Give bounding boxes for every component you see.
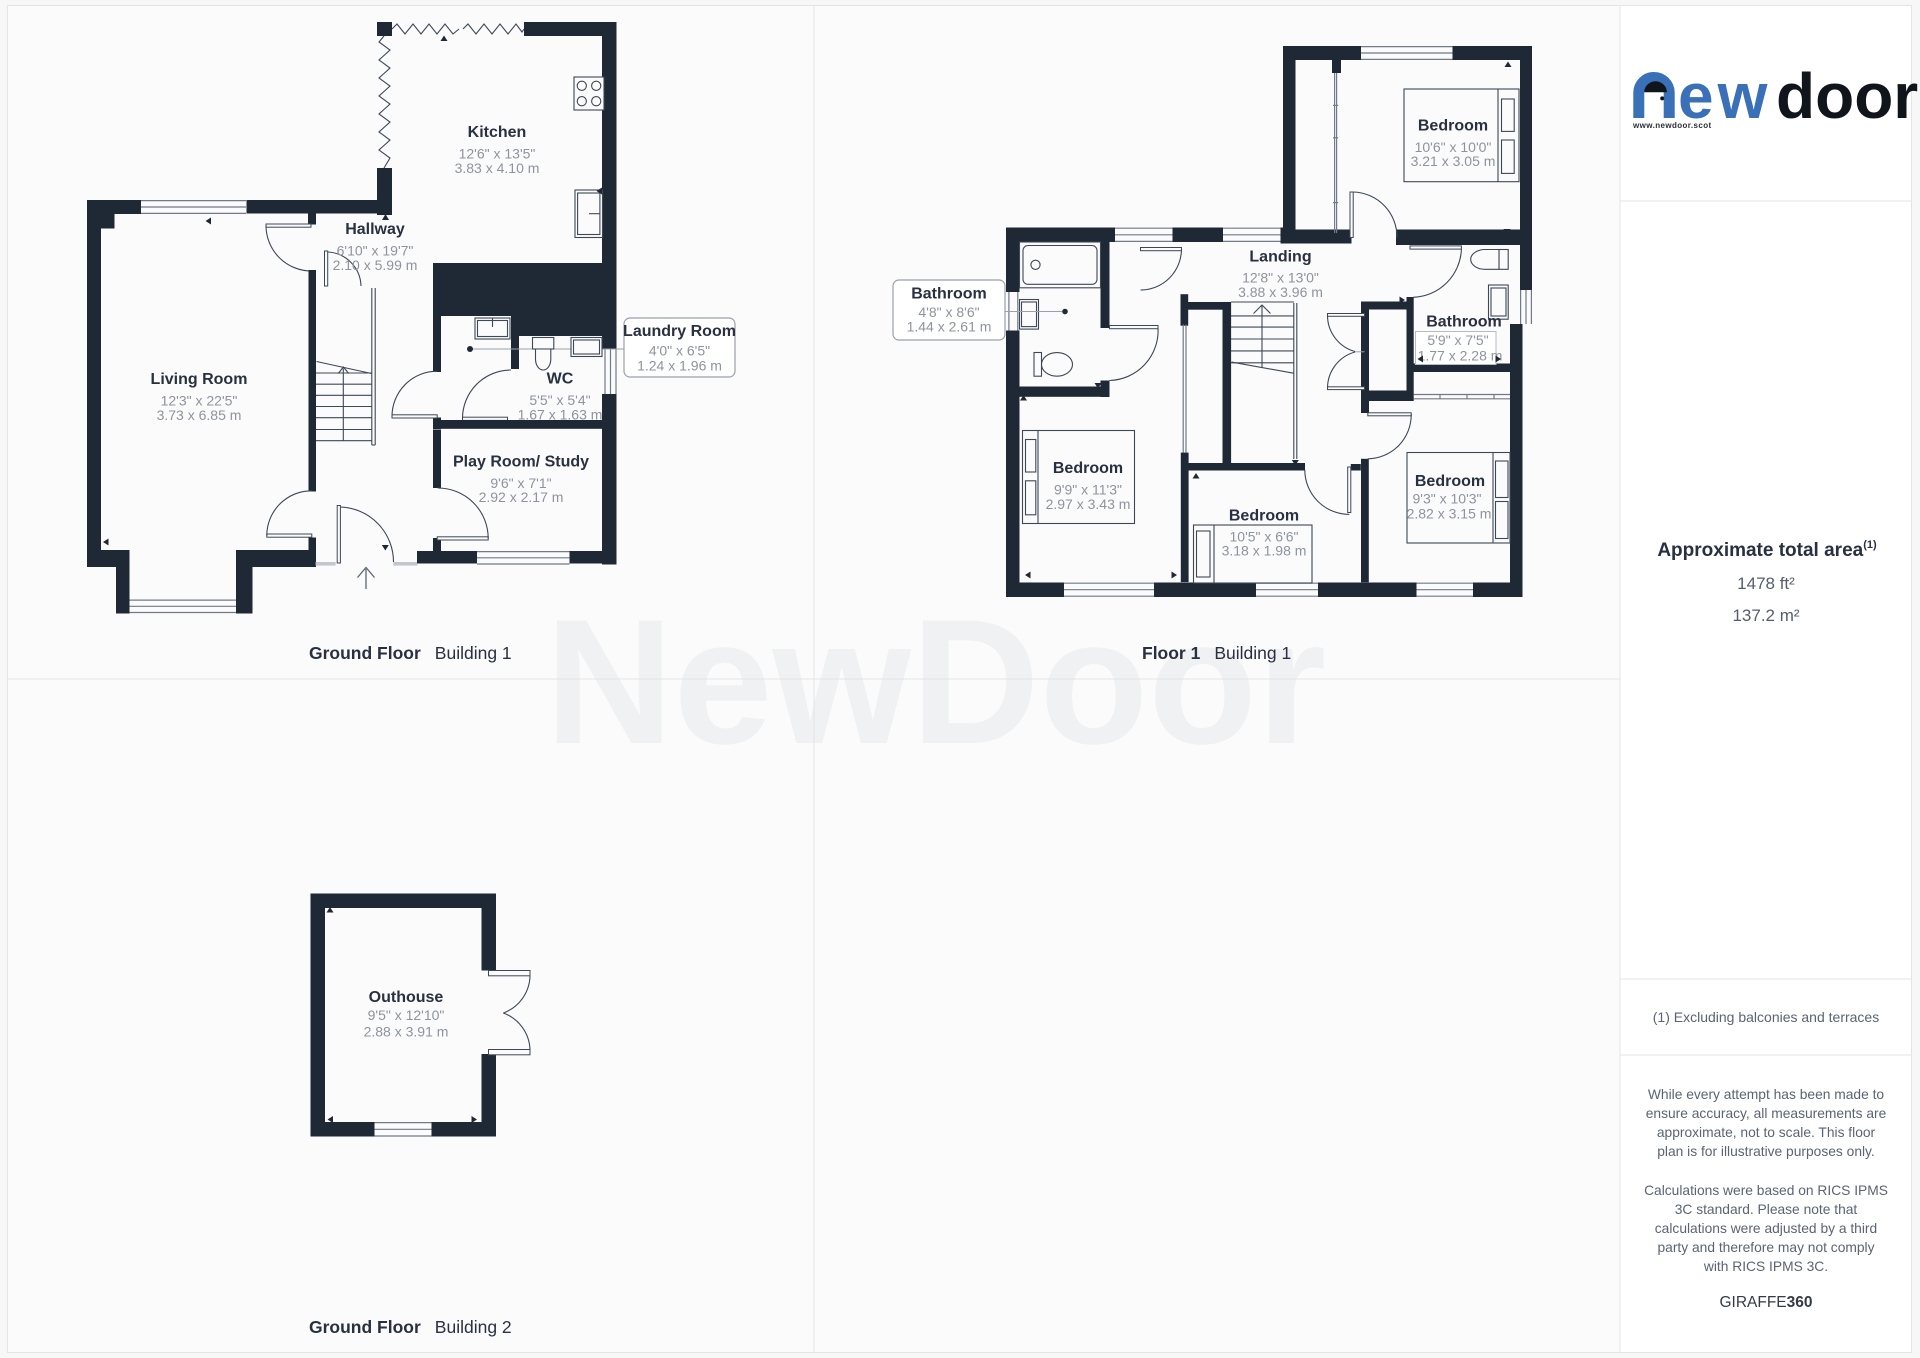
svg-text:5'9" x 7'5": 5'9" x 7'5" <box>1427 332 1488 348</box>
svg-text:NewDoor: NewDoor <box>545 582 1326 781</box>
svg-text:2.92 x 2.17 m: 2.92 x 2.17 m <box>479 489 564 505</box>
svg-text:Outhouse: Outhouse <box>369 989 444 1006</box>
svg-text:4'0" x 6'5": 4'0" x 6'5" <box>649 343 710 359</box>
svg-text:Kitchen: Kitchen <box>468 124 527 141</box>
svg-text:Ground FloorBuilding 2: Ground FloorBuilding 2 <box>309 1317 512 1337</box>
svg-text:9'3" x 10'3": 9'3" x 10'3" <box>1413 491 1482 507</box>
svg-text:Bedroom: Bedroom <box>1418 118 1488 135</box>
svg-text:Play Room/ Study: Play Room/ Study <box>453 454 589 471</box>
svg-text:3.83 x 4.10 m: 3.83 x 4.10 m <box>455 160 540 176</box>
svg-text:While every attempt has been m: While every attempt has been made to <box>1648 1087 1885 1102</box>
svg-text:calculations were adjusted by: calculations were adjusted by a third <box>1655 1221 1877 1236</box>
svg-text:Bathroom: Bathroom <box>1426 314 1502 331</box>
svg-text:Hallway: Hallway <box>345 221 405 238</box>
svg-text:(1) Excluding balconies and te: (1) Excluding balconies and terraces <box>1653 1009 1879 1025</box>
svg-text:Calculations were based on RIC: Calculations were based on RICS IPMS <box>1644 1183 1888 1198</box>
svg-text:GIRAFFE360: GIRAFFE360 <box>1719 1294 1812 1311</box>
svg-text:Living Room: Living Room <box>151 371 248 388</box>
svg-text:3.88 x 3.96 m: 3.88 x 3.96 m <box>1238 284 1323 300</box>
svg-text:party and therefore may not co: party and therefore may not comply <box>1657 1240 1874 1255</box>
svg-text:3.21 x 3.05 m: 3.21 x 3.05 m <box>1411 153 1496 169</box>
svg-text:1478 ft²: 1478 ft² <box>1737 574 1795 593</box>
svg-text:ensure accuracy, all measureme: ensure accuracy, all measurements are <box>1646 1106 1887 1121</box>
svg-text:approximate, not to scale. Thi: approximate, not to scale. This floor <box>1657 1125 1876 1140</box>
svg-text:door: door <box>1776 60 1918 132</box>
svg-text:1.67 x 1.63 m: 1.67 x 1.63 m <box>518 407 603 423</box>
svg-text:1.44 x 2.61 m: 1.44 x 2.61 m <box>907 319 992 335</box>
svg-text:Bedroom: Bedroom <box>1415 473 1485 490</box>
svg-text:Laundry Room: Laundry Room <box>623 323 736 340</box>
svg-text:Bathroom: Bathroom <box>911 286 987 303</box>
svg-text:with RICS IPMS 3C.: with RICS IPMS 3C. <box>1703 1259 1828 1274</box>
svg-text:www.newdoor.scot: www.newdoor.scot <box>1632 121 1712 130</box>
svg-text:Approximate total area(1): Approximate total area(1) <box>1657 539 1877 561</box>
svg-text:1.24 x 1.96 m: 1.24 x 1.96 m <box>637 358 722 374</box>
svg-text:Ground FloorBuilding 1: Ground FloorBuilding 1 <box>309 643 512 663</box>
svg-text:Landing: Landing <box>1249 249 1311 266</box>
svg-text:Bedroom: Bedroom <box>1053 460 1123 477</box>
svg-text:Floor 1Building 1: Floor 1Building 1 <box>1142 643 1291 663</box>
svg-text:137.2 m²: 137.2 m² <box>1732 606 1799 625</box>
svg-text:2.82 x 3.15 m: 2.82 x 3.15 m <box>1407 506 1492 522</box>
svg-text:3C standard. Please note that: 3C standard. Please note that <box>1675 1202 1858 1217</box>
svg-text:WC: WC <box>547 371 574 388</box>
svg-text:2.10 x 5.99 m: 2.10 x 5.99 m <box>333 257 418 273</box>
svg-text:2.88 x 3.91 m: 2.88 x 3.91 m <box>364 1024 449 1040</box>
svg-text:1.77 x 2.28 m: 1.77 x 2.28 m <box>1418 348 1503 364</box>
svg-text:3.73 x 6.85 m: 3.73 x 6.85 m <box>157 407 242 423</box>
svg-text:3.18 x 1.98 m: 3.18 x 1.98 m <box>1222 543 1307 559</box>
svg-text:9'5" x 12'10": 9'5" x 12'10" <box>368 1007 445 1023</box>
svg-text:2.97 x 3.43 m: 2.97 x 3.43 m <box>1046 496 1131 512</box>
svg-text:Bedroom: Bedroom <box>1229 508 1299 525</box>
svg-text:plan is for illustrative purpo: plan is for illustrative purposes only. <box>1657 1144 1875 1159</box>
